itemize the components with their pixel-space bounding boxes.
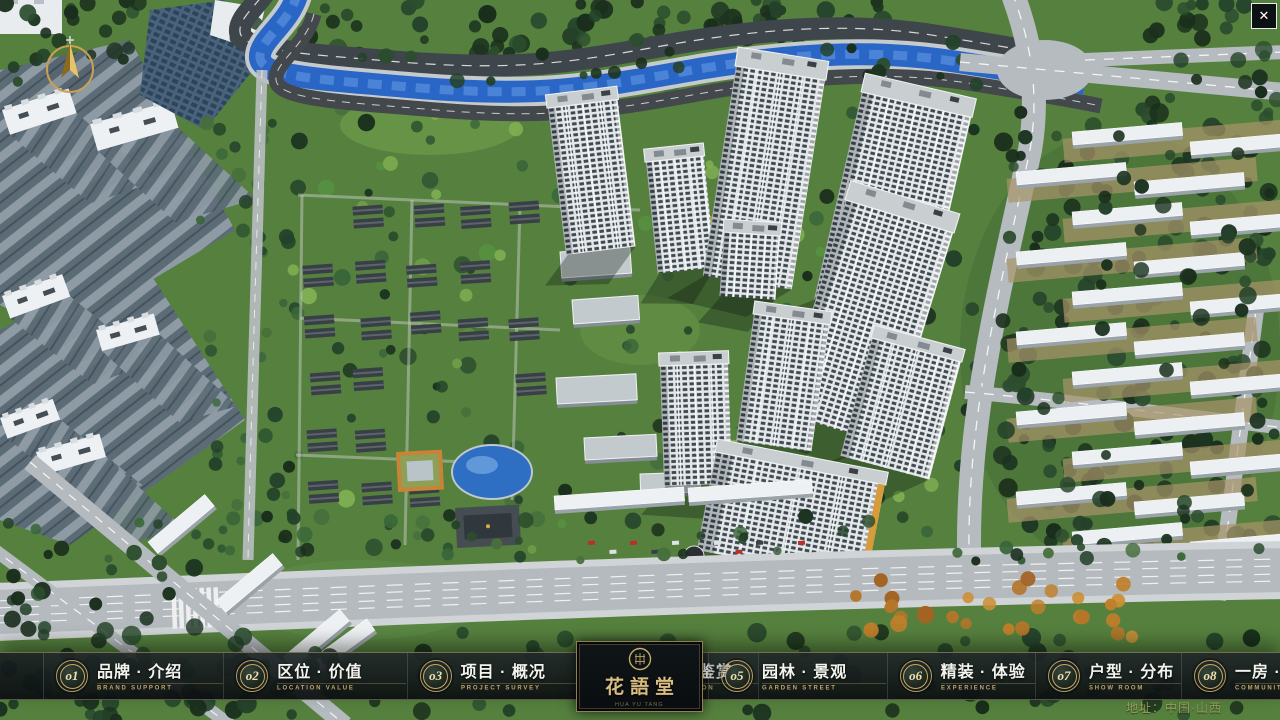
nav-item-number-badge: o7 xyxy=(1048,660,1080,692)
logo-seal-icon xyxy=(628,647,652,671)
nav-item-number: o2 xyxy=(240,664,265,689)
nav-item-o7[interactable]: o7户型 · 分布SHOW ROOM xyxy=(1035,653,1181,699)
nav-item-o2[interactable]: o2区位 · 价值LOCATION VALUE xyxy=(223,653,406,699)
nav-item-o5[interactable]: o5园林 · 景观GARDEN STREET xyxy=(708,653,887,699)
nav-item-title: 区位 · 价值 xyxy=(277,658,406,682)
compass-icon xyxy=(38,33,102,97)
nav-item-subtitle: COMMUNITY xyxy=(1235,683,1280,690)
nav-item-number-badge: o5 xyxy=(721,660,753,692)
nav-item-number-badge: o3 xyxy=(420,660,452,692)
nav-item-title: 一房 · 一景 xyxy=(1235,658,1280,682)
project-logo-title: 花語堂 xyxy=(605,672,680,699)
nav-item-title: 项目 · 概况 xyxy=(461,658,594,682)
nav-item-number: o3 xyxy=(423,664,448,689)
nav-item-number-badge: o8 xyxy=(1194,660,1226,692)
project-logo-panel[interactable]: 花語堂 HUA YU TANG xyxy=(576,641,703,712)
nav-item-number-badge: o1 xyxy=(56,660,88,692)
nav-item-subtitle: BRAND SUPPORT xyxy=(97,683,223,690)
nav-item-number: o5 xyxy=(725,664,750,689)
address-label: 地址：中国·山西 xyxy=(1126,699,1222,716)
nav-item-number: o1 xyxy=(60,664,85,689)
nav-group-right: o5园林 · 景观GARDEN STREETo6精装 · 体验EXPERIENC… xyxy=(708,653,1244,699)
nav-item-number: o7 xyxy=(1052,664,1077,689)
nav-item-o3[interactable]: o3项目 · 概况PROJECT SURVEY xyxy=(407,653,594,699)
nav-item-o6[interactable]: o6精装 · 体验EXPERIENCE xyxy=(887,653,1035,699)
masterplan-3d-view[interactable] xyxy=(0,0,1280,720)
nav-item-number: o6 xyxy=(903,664,928,689)
nav-item-number-badge: o2 xyxy=(236,660,268,692)
nav-item-o8[interactable]: o8一房 · 一景COMMUNITY xyxy=(1181,653,1280,699)
nav-item-o1[interactable]: o1品牌 · 介绍BRAND SUPPORT xyxy=(43,653,223,699)
nav-item-title: 户型 · 分布 xyxy=(1089,658,1181,682)
nav-item-title: 品牌 · 介绍 xyxy=(97,658,223,682)
nav-item-subtitle: GARDEN STREET xyxy=(762,683,886,690)
nav-group-left: o1品牌 · 介绍BRAND SUPPORTo2区位 · 价值LOCATION … xyxy=(43,653,577,699)
nav-item-subtitle: EXPERIENCE xyxy=(941,683,1035,690)
nav-item-subtitle: PROJECT SURVEY xyxy=(461,683,593,690)
nav-item-subtitle: SHOW ROOM xyxy=(1089,683,1181,690)
sales-app-window: ✕ o1品牌 · 介绍BRAND SUPPORTo2区位 · 价值LOCATIO… xyxy=(0,0,1280,720)
nav-item-number: o8 xyxy=(1198,664,1223,689)
close-button[interactable]: ✕ xyxy=(1251,3,1277,29)
nav-item-subtitle: LOCATION VALUE xyxy=(277,683,406,690)
nav-item-title: 园林 · 景观 xyxy=(762,658,887,682)
nav-item-title: 精装 · 体验 xyxy=(941,658,1035,682)
nav-item-number-badge: o6 xyxy=(900,660,932,692)
project-logo-subtitle: HUA YU TANG xyxy=(615,701,664,705)
